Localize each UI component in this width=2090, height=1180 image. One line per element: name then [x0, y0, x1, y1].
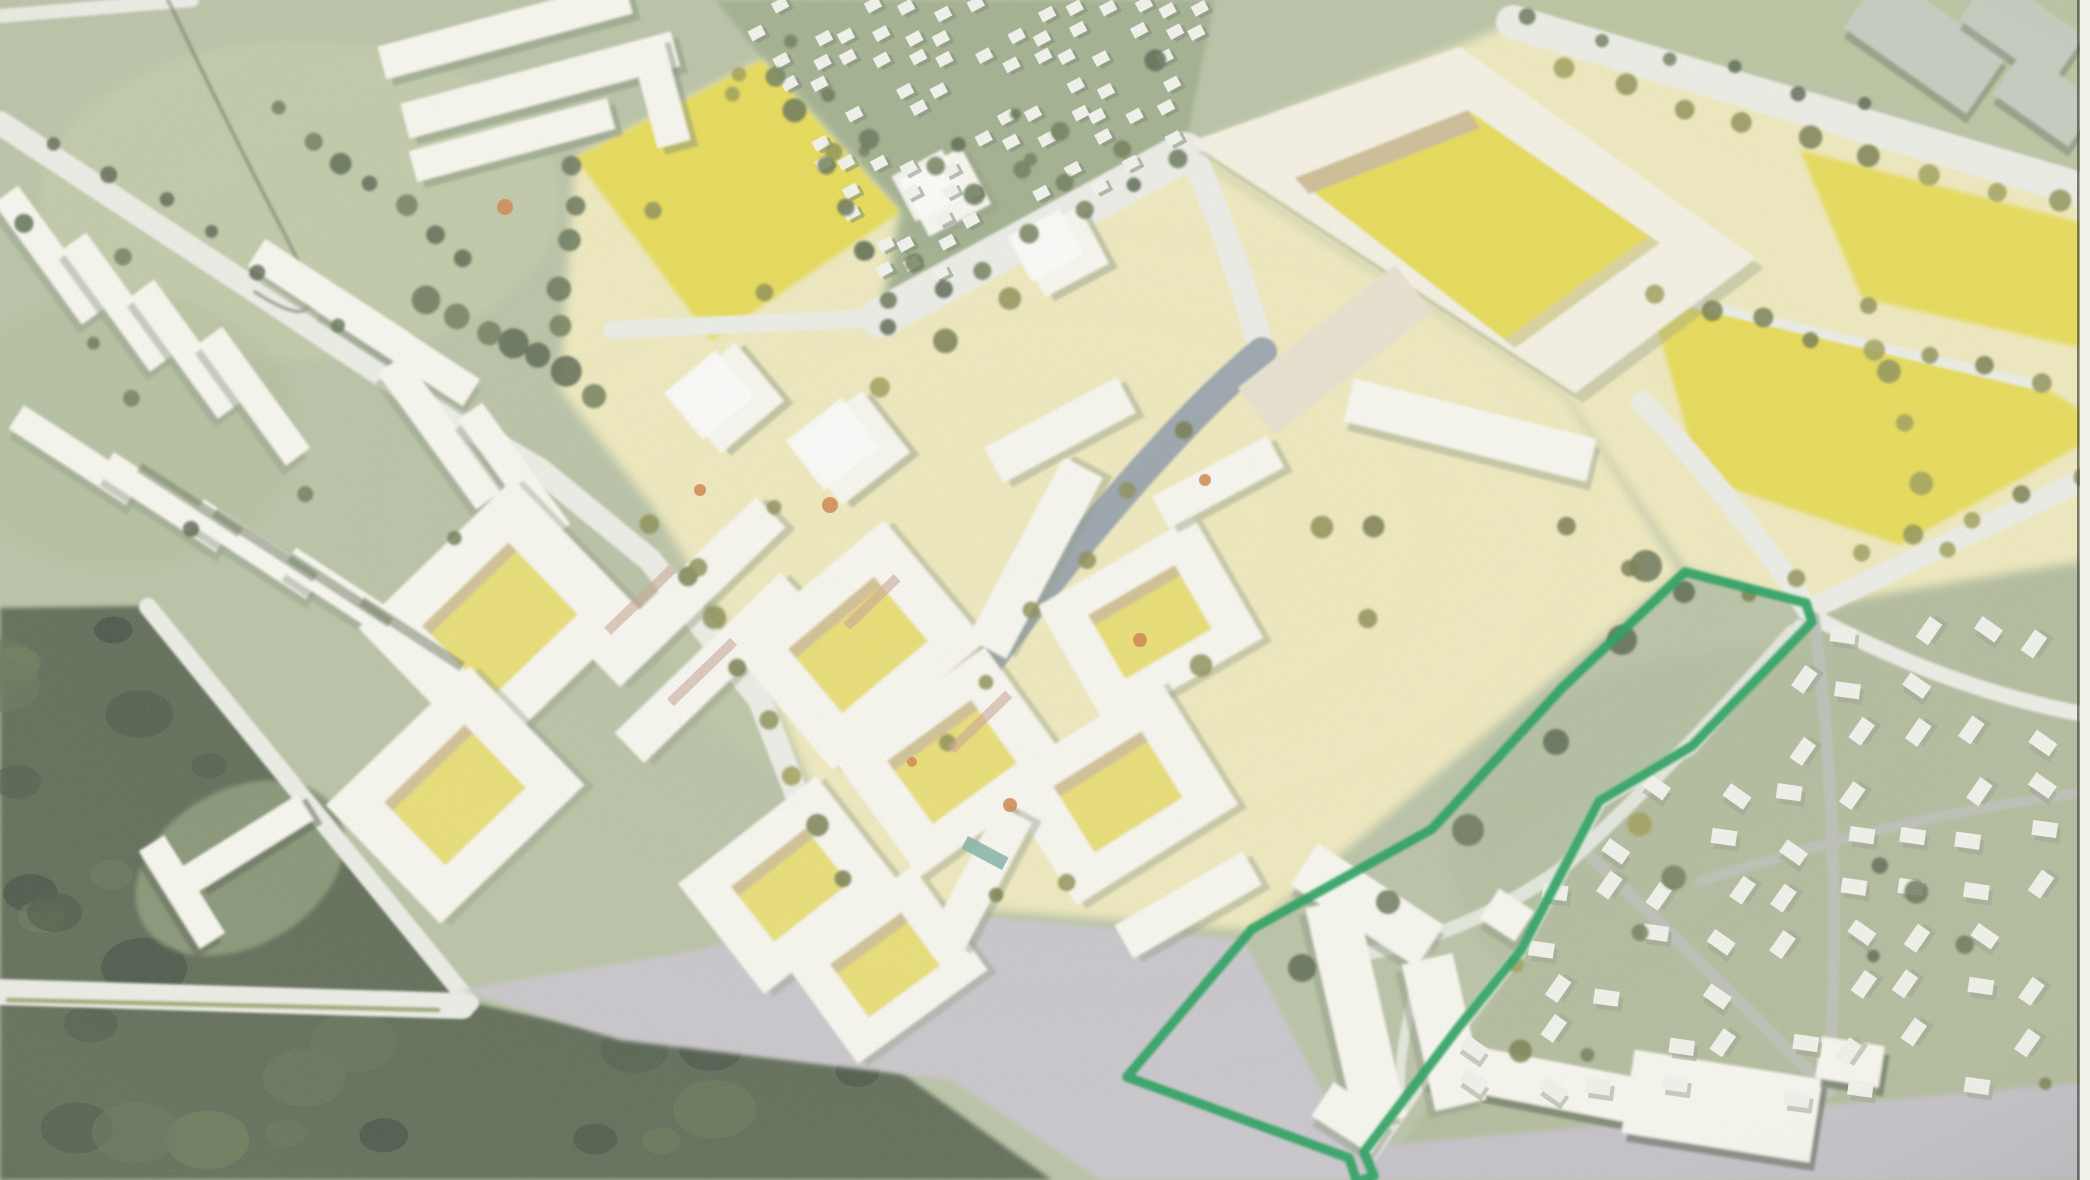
scan-edge-white: [2080, 0, 2090, 1180]
vignette: [0, 0, 2090, 1180]
masterplan-rendering: [0, 0, 2090, 1180]
scan-edge-line: [2077, 0, 2080, 1180]
masterplan-image: [0, 0, 2090, 1180]
